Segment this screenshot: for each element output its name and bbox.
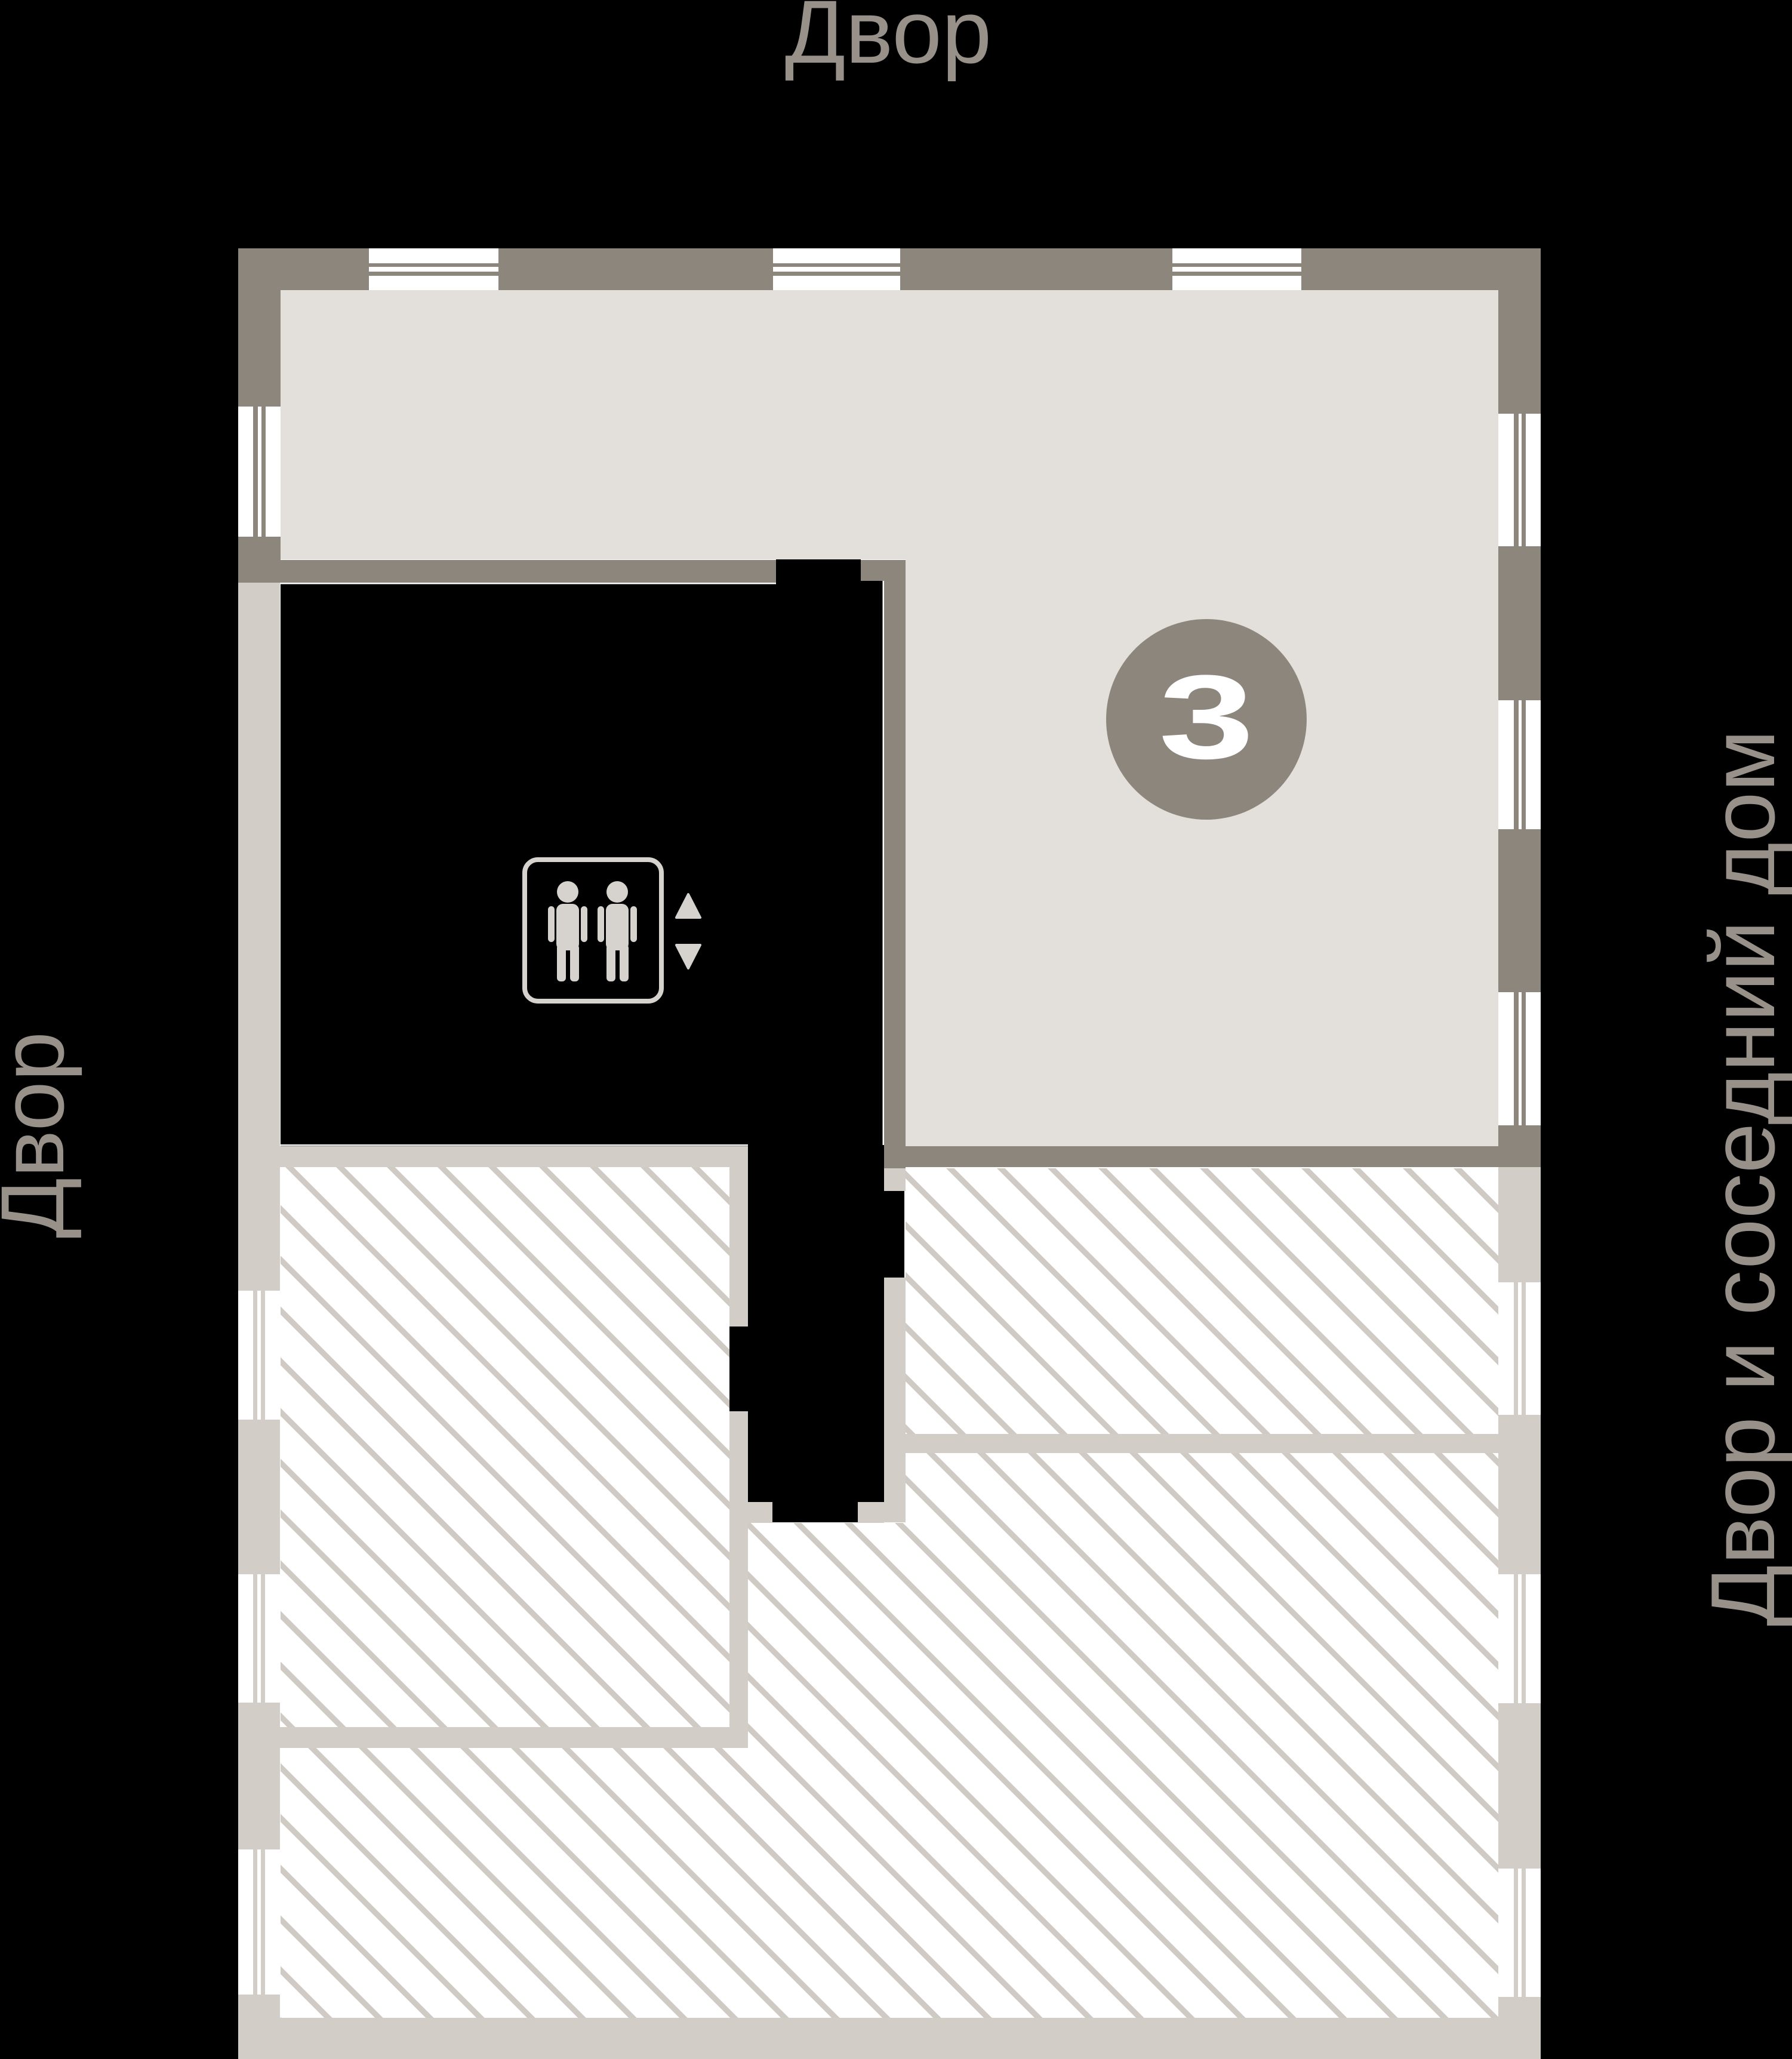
svg-text:Двор: Двор — [785, 0, 992, 82]
svg-text:Двор: Двор — [0, 1032, 82, 1238]
svg-text:3: 3 — [1159, 650, 1254, 783]
svg-text:Двор и соседний дом: Двор и соседний дом — [1692, 730, 1792, 1626]
